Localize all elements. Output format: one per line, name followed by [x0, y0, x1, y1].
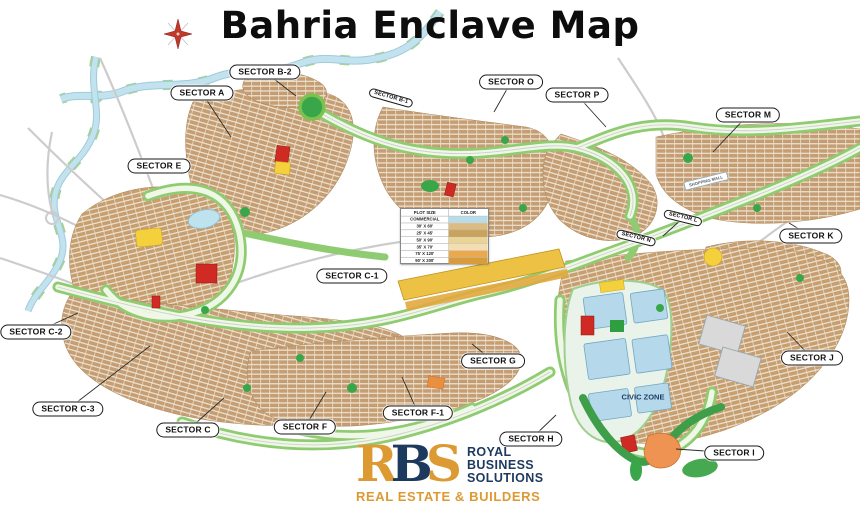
legend-header-row: PLOT SIZECOLOR — [401, 209, 488, 216]
plot-size-legend: PLOT SIZECOLORCOMMERCIAL30' X 60'25' X 4… — [400, 208, 489, 264]
legend-color-swatch — [449, 223, 488, 229]
sector-label-sector-b-2: SECTOR B-2 — [229, 65, 300, 80]
legend-color-swatch — [449, 237, 488, 243]
legend-plot-size: 35' X 70' — [401, 244, 449, 250]
sector-label-sector-j: SECTOR J — [781, 351, 843, 366]
logo-monogram: RBS — [356, 441, 467, 487]
legend-plot-size: 25' X 45' — [401, 230, 449, 236]
legend-row: 75' X 120' — [401, 251, 488, 258]
sector-label-sector-c-2: SECTOR C-2 — [0, 325, 71, 340]
legend-plot-size: PLOT SIZE — [401, 209, 449, 216]
logo-letter-r: R — [356, 434, 391, 493]
sector-label-sector-f-1: SECTOR F-1 — [383, 406, 453, 421]
sector-label-sector-o: SECTOR O — [479, 75, 543, 90]
legend-plot-size: 50' X 90' — [401, 237, 449, 243]
page-title: Bahria Enclave Map — [221, 4, 640, 47]
sector-label-sector-a: SECTOR A — [170, 86, 233, 101]
sector-label-sector-c: SECTOR C — [156, 423, 219, 438]
legend-row: 25' X 45' — [401, 230, 488, 237]
legend-row: 50' X 90' — [401, 237, 488, 244]
sector-label-sector-p: SECTOR P — [546, 88, 609, 103]
sector-label-sector-m: SECTOR M — [716, 108, 780, 123]
logo-name-line: SOLUTIONS — [467, 472, 544, 485]
legend-row: 90' X 200' — [401, 258, 488, 265]
rbs-logo: RBS ROYAL BUSINESS SOLUTIONS REAL ESTATE… — [356, 441, 536, 504]
sector-label-sector-f: SECTOR F — [274, 420, 336, 435]
sector-label-sector-g: SECTOR G — [461, 354, 525, 369]
compass-icon — [162, 17, 194, 51]
sector-label-sector-c-3: SECTOR C-3 — [32, 402, 103, 417]
legend-plot-size: 75' X 120' — [401, 251, 449, 257]
legend-row: 30' X 60' — [401, 223, 488, 230]
legend-color-swatch — [449, 244, 488, 250]
sector-label-sector-c-1: SECTOR C-1 — [316, 269, 387, 284]
sector-label-sector-e: SECTOR E — [128, 159, 191, 174]
map-text-civic-zone: CIVIC ZONE — [622, 393, 665, 402]
logo-letter-s: S — [426, 434, 455, 493]
legend-plot-size: 30' X 60' — [401, 223, 449, 229]
legend-row: COMMERCIAL — [401, 216, 488, 223]
legend-plot-size: COMMERCIAL — [401, 216, 449, 222]
logo-tagline: REAL ESTATE & BUILDERS — [356, 489, 536, 504]
legend-plot-size: 90' X 200' — [401, 258, 449, 264]
sector-label-sector-k: SECTOR K — [779, 229, 842, 244]
legend-color-swatch — [449, 216, 488, 222]
bahria-enclave-map: Bahria Enclave Map PLOT SIZECOLORCOMMERC… — [0, 0, 860, 522]
legend-color-swatch — [449, 258, 488, 264]
legend-color-swatch — [449, 230, 488, 236]
logo-letter-b: B — [391, 434, 426, 493]
legend-color-swatch — [449, 251, 488, 257]
legend-row: 35' X 70' — [401, 244, 488, 251]
logo-company-name: ROYAL BUSINESS SOLUTIONS — [467, 441, 544, 485]
legend-color-header: COLOR — [449, 209, 488, 216]
sector-label-sector-i: SECTOR I — [704, 446, 764, 461]
